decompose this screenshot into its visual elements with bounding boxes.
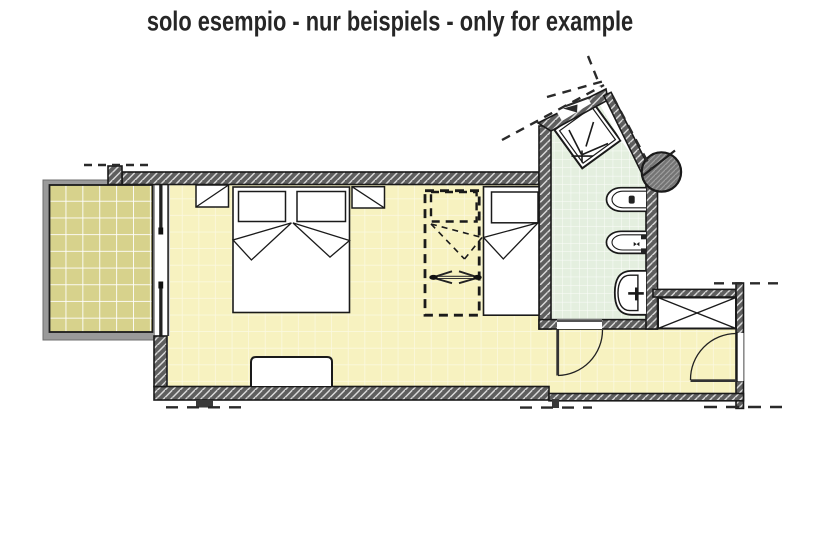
svg-text:solo esempio - nur beispiels -: solo esempio - nur beispiels - only for … (147, 6, 633, 37)
